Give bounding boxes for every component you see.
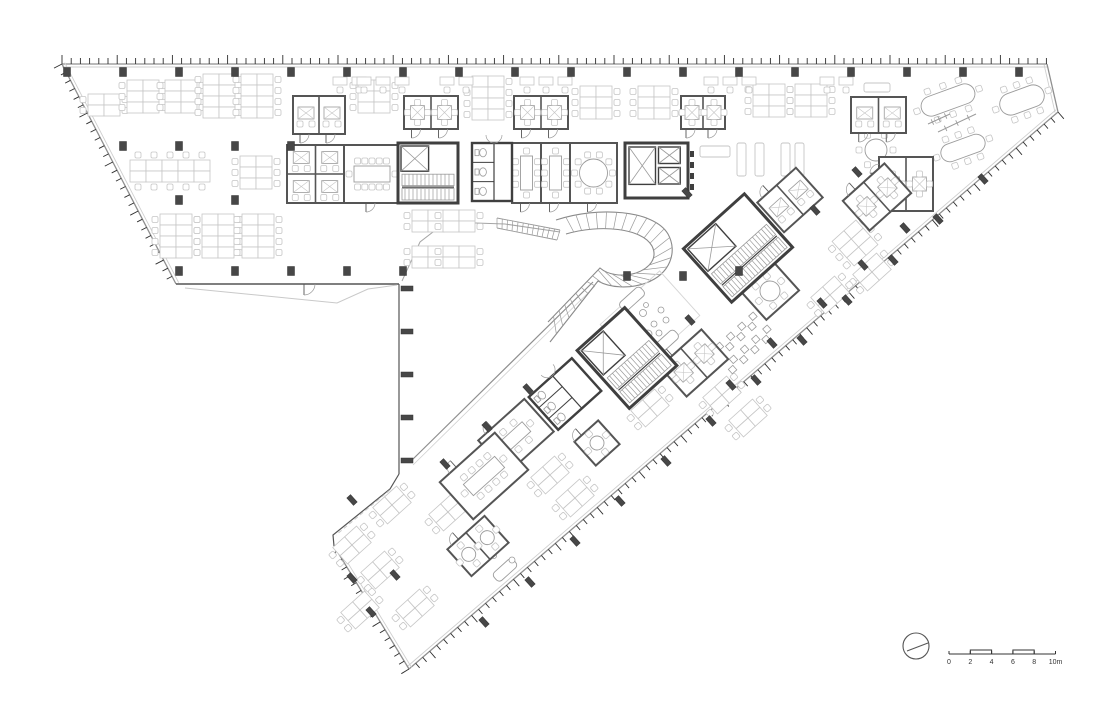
pier	[842, 295, 852, 306]
desk-cluster-rotated	[335, 586, 385, 634]
wall-desks	[704, 77, 756, 93]
meeting-room	[287, 145, 344, 203]
desk-cluster-rotated	[367, 481, 417, 529]
wall-desks	[440, 77, 473, 93]
pier	[810, 205, 820, 216]
pier	[685, 315, 695, 326]
pier	[390, 570, 400, 581]
desk-cluster-rotated	[390, 584, 440, 632]
wall-desks	[820, 77, 853, 93]
scale-label: 0	[947, 659, 951, 666]
wall-desks	[520, 77, 572, 93]
oval-table	[928, 121, 998, 174]
wall-desks	[357, 77, 409, 93]
pier	[852, 167, 862, 178]
north-arrow-icon	[903, 633, 929, 659]
pier	[523, 384, 533, 395]
meeting-room	[568, 414, 619, 466]
meeting-room	[293, 96, 345, 143]
meeting-room	[512, 143, 541, 212]
scale-label: 6	[1011, 659, 1015, 666]
meeting-room	[570, 143, 617, 212]
pier	[767, 338, 777, 349]
meeting-room	[344, 145, 400, 212]
pier	[570, 536, 580, 547]
desk-cluster	[630, 86, 678, 119]
oval-table	[986, 72, 1057, 129]
entrance-door	[304, 284, 315, 295]
desk-cluster	[572, 86, 620, 119]
pier	[347, 495, 357, 506]
scale-label: 2	[968, 659, 972, 666]
wc-core	[472, 135, 512, 201]
stair-core	[398, 143, 458, 203]
meeting-room	[514, 96, 568, 138]
meeting-room	[851, 97, 906, 142]
pier	[797, 335, 807, 346]
pier	[706, 416, 716, 427]
pier	[479, 617, 489, 628]
pier	[751, 375, 761, 386]
pier	[900, 223, 910, 234]
pier	[615, 496, 625, 507]
pier	[440, 459, 450, 470]
scale-bar: 0246810m	[947, 650, 1062, 666]
desk-bench	[130, 152, 210, 190]
desk-cluster	[232, 156, 280, 189]
oval-table	[908, 71, 988, 129]
scale-label: 10m	[1049, 659, 1063, 666]
meeting-room	[541, 143, 570, 212]
curved-stair	[497, 212, 672, 342]
meeting-room	[404, 96, 458, 138]
pier	[661, 456, 671, 467]
meeting-room-rotated	[568, 414, 619, 466]
pier	[978, 174, 988, 185]
pier	[347, 573, 357, 584]
floor-plan-page: 0246810m	[0, 0, 1100, 702]
pier	[525, 577, 535, 588]
scale-label: 4	[990, 659, 994, 666]
scale-label: 8	[1032, 659, 1036, 666]
floor-plan-drawing: 0246810m	[0, 0, 1100, 702]
meeting-room	[679, 96, 727, 138]
